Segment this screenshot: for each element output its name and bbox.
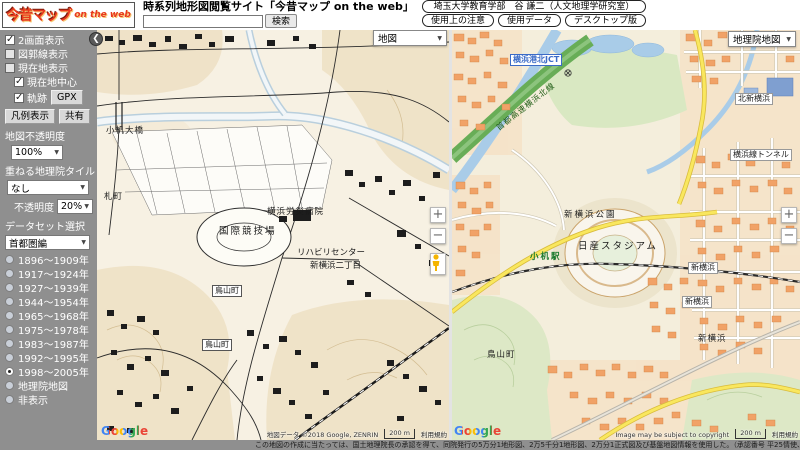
header-button-row: 使用上の注意 使用データ デスクトップ版 [422, 14, 646, 27]
toggle-track[interactable]: 軌跡 GPX [14, 90, 93, 105]
checkbox-track[interactable] [14, 93, 24, 103]
period-option[interactable]: 1965～1968年 [5, 310, 93, 321]
period-option[interactable]: 1975～1978年 [5, 324, 93, 335]
toggle-map-frame[interactable]: 図郭線表示 [5, 48, 93, 59]
radio-period-4[interactable] [5, 311, 14, 320]
right-zoom-out-button[interactable]: − [781, 228, 797, 244]
map-attribution: 地図データ ©2018 Google, ZENRIN [267, 429, 378, 439]
right-map-layer-select[interactable]: 地理院地図 [728, 31, 796, 47]
map-attribution: Image may be subject to copyright [615, 431, 729, 439]
map-label: 新横浜 [698, 334, 727, 344]
map-label: 新横浜 [688, 262, 718, 274]
map-label: 小机駅 [530, 252, 562, 262]
header: 今昔マップ on the web 時系列地形図閲覧サイト「今昔マップ on th… [0, 0, 800, 30]
dataset-select[interactable]: 首都圏編 [5, 235, 90, 250]
google-logo[interactable]: Google [101, 424, 148, 438]
used-data-button[interactable]: 使用データ [498, 14, 561, 27]
period-label: 非表示 [18, 392, 48, 407]
map-label: 札町 [104, 192, 123, 202]
checkbox-label: 図郭線表示 [18, 46, 68, 61]
left-zoom-out-button[interactable]: − [430, 228, 446, 244]
radio-period-7[interactable] [5, 353, 14, 362]
radio-period-5[interactable] [5, 325, 14, 334]
radio-period-9[interactable] [5, 381, 14, 390]
checkbox-label: 現在地中心 [27, 74, 77, 89]
site-title: 時系列地形図閲覧サイト「今昔マップ on the web」 [143, 0, 414, 13]
toggle-two-screen[interactable]: 2画面表示 [5, 34, 93, 45]
radio-period-10[interactable] [5, 395, 14, 404]
radio-period-1[interactable] [5, 269, 14, 278]
period-label: 1992～1995年 [18, 350, 89, 365]
map-label: 新横浜二丁目 [310, 261, 361, 271]
scale-bar: 200 m [735, 429, 766, 439]
share-button[interactable]: 共有 [59, 109, 90, 124]
search-button[interactable]: 検索 [265, 14, 297, 28]
left-zoom-in-button[interactable]: + [430, 207, 446, 223]
terms-link[interactable]: 利用規約 [421, 429, 447, 439]
period-option[interactable]: 1896～1909年 [5, 254, 93, 265]
overlay-opacity-row: 不透明度 20% [14, 198, 93, 214]
title-block: 時系列地形図閲覧サイト「今昔マップ on the web」 検索 [143, 0, 414, 28]
usage-notes-button[interactable]: 使用上の注意 [422, 14, 494, 27]
map-label: 横浜線トンネル [730, 149, 792, 161]
pegman-icon [431, 254, 441, 272]
map-label: 新横浜 [682, 296, 712, 308]
right-map-attribution-row: Image may be subject to copyright 200 m … [615, 429, 798, 439]
period-label: 1983～1987年 [18, 336, 89, 351]
radio-period-2[interactable] [5, 283, 14, 292]
credit-button[interactable]: 埼玉大学教育学部 谷 謙二（人文地理学研究室） [422, 0, 646, 13]
radio-period-8[interactable] [5, 367, 14, 376]
toggle-center-location[interactable]: 現在地中心 [14, 76, 93, 87]
site-logo[interactable]: 今昔マップ on the web [2, 2, 135, 28]
dataset-value: 首都圏編 [9, 236, 47, 250]
overlay-tile-value: なし [11, 181, 30, 195]
left-map-layer-value: 地図 [378, 31, 397, 45]
map-label: 鳥山町 [212, 285, 242, 297]
search-input[interactable] [143, 15, 263, 28]
overlay-opacity-select[interactable]: 20% [57, 199, 93, 214]
period-label: 1965～1968年 [18, 308, 89, 323]
radio-period-0[interactable] [5, 255, 14, 264]
map-label: 日産スタジアム [578, 242, 658, 252]
period-option[interactable]: 非表示 [5, 394, 93, 405]
period-option[interactable]: 1983～1987年 [5, 338, 93, 349]
logo-sub-text: on the web [74, 10, 131, 20]
checkbox-two-screen[interactable] [5, 35, 15, 45]
pegman-street-view[interactable] [430, 253, 446, 275]
overlay-opacity-label: 不透明度 [14, 199, 54, 214]
scale-bar: 200 m [384, 429, 415, 439]
period-label: 1896～1909年 [18, 252, 89, 267]
period-option[interactable]: 地理院地図 [5, 380, 93, 391]
period-label: 1975～1978年 [18, 322, 89, 337]
period-label: 1998～2005年 [18, 364, 89, 379]
gpx-button[interactable]: GPX [51, 90, 83, 105]
checkbox-current-location[interactable] [5, 63, 15, 73]
map-label: 鳥山町 [487, 350, 516, 360]
map-container: 小机大橋 札町 横浜労災病院 国際競技場 リハビリセンター 新横浜二丁目 鳥山町… [97, 30, 800, 440]
right-map-layer-value: 地理院地図 [733, 32, 781, 46]
dataset-label: データセット選択 [5, 218, 93, 233]
map-label: 新横浜公園 [564, 210, 617, 220]
map-label: 横浜港北JCT [510, 54, 562, 66]
search-row: 検索 [143, 14, 414, 28]
map-opacity-label: 地図不透明度 [5, 128, 93, 143]
footer-attribution-text: この地図の作成に当たっては、国土地理院長の承認を得て、同院発行の5万分1地形図、… [255, 441, 800, 449]
period-option[interactable]: 1944～1954年 [5, 296, 93, 307]
desktop-version-button[interactable]: デスクトップ版 [565, 14, 646, 27]
period-label: 1944～1954年 [18, 294, 89, 309]
period-option-selected[interactable]: 1998～2005年 [5, 366, 93, 377]
checkbox-label: 2画面表示 [18, 32, 64, 47]
period-label: 1927～1939年 [18, 280, 89, 295]
radio-period-6[interactable] [5, 339, 14, 348]
legend-button[interactable]: 凡例表示 [5, 109, 55, 124]
period-label: 1917～1924年 [18, 266, 89, 281]
map-label: リハビリセンター [297, 248, 365, 258]
sidebar-collapse-button[interactable]: ❮ [89, 32, 103, 46]
overlay-opacity-value: 20% [61, 201, 82, 212]
overlay-tile-label: 重ねる地理院タイル [5, 163, 93, 178]
period-option[interactable]: 1992～1995年 [5, 352, 93, 363]
main-body: 2画面表示 図郭線表示 現在地表示 現在地中心 軌跡 GPX 凡例表示 共有 [0, 30, 800, 440]
toggle-current-location[interactable]: 現在地表示 [5, 62, 93, 73]
checkbox-center-location[interactable] [14, 77, 24, 87]
sidebar: 2画面表示 図郭線表示 現在地表示 現在地中心 軌跡 GPX 凡例表示 共有 [0, 30, 97, 440]
footer: この地図の作成に当たっては、国土地理院長の承認を得て、同院発行の5万分1地形図、… [0, 440, 800, 450]
map-label: 北新横浜 [735, 93, 773, 105]
map-label: 小机大橋 [106, 126, 144, 136]
overlay-tile-select[interactable]: なし [7, 180, 89, 195]
checkbox-label: 現在地表示 [18, 60, 68, 75]
right-map-canvas[interactable] [452, 30, 800, 440]
map-opacity-select[interactable]: 100% [11, 145, 63, 160]
left-map-attribution-row: 地図データ ©2018 Google, ZENRIN 200 m 利用規約 [267, 429, 447, 439]
logo-main-text: 今昔マップ [6, 5, 71, 25]
map-label: 鳥山町 [202, 339, 232, 351]
checkbox-label: 軌跡 [27, 90, 47, 105]
checkbox-map-frame[interactable] [5, 49, 15, 59]
map-label: 国際競技場 [219, 227, 277, 237]
left-map-layer-select[interactable]: 地図 [373, 30, 447, 46]
header-buttons: 埼玉大学教育学部 谷 謙二（人文地理学研究室） 使用上の注意 使用データ デスク… [422, 0, 646, 27]
period-option[interactable]: 1917～1924年 [5, 268, 93, 279]
period-label: 地理院地図 [18, 378, 68, 393]
map-opacity-value: 100% [15, 147, 42, 158]
konjaku-map-app: 今昔マップ on the web 時系列地形図閲覧サイト「今昔マップ on th… [0, 0, 800, 450]
sidebar-button-row: 凡例表示 共有 [5, 108, 93, 124]
period-option[interactable]: 1927～1939年 [5, 282, 93, 293]
map-label: 横浜労災病院 [267, 207, 324, 217]
right-map-panel: 横浜港北JCT 首都高速横浜北線 北新横浜 横浜線トンネル 新横浜公園 日産スタ… [449, 30, 800, 440]
terms-link[interactable]: 利用規約 [772, 429, 798, 439]
google-logo[interactable]: Google [454, 424, 501, 438]
right-zoom-in-button[interactable]: + [781, 207, 797, 223]
left-map-panel: 小机大橋 札町 横浜労災病院 国際競技場 リハビリセンター 新横浜二丁目 鳥山町… [97, 30, 449, 440]
radio-period-3[interactable] [5, 297, 14, 306]
